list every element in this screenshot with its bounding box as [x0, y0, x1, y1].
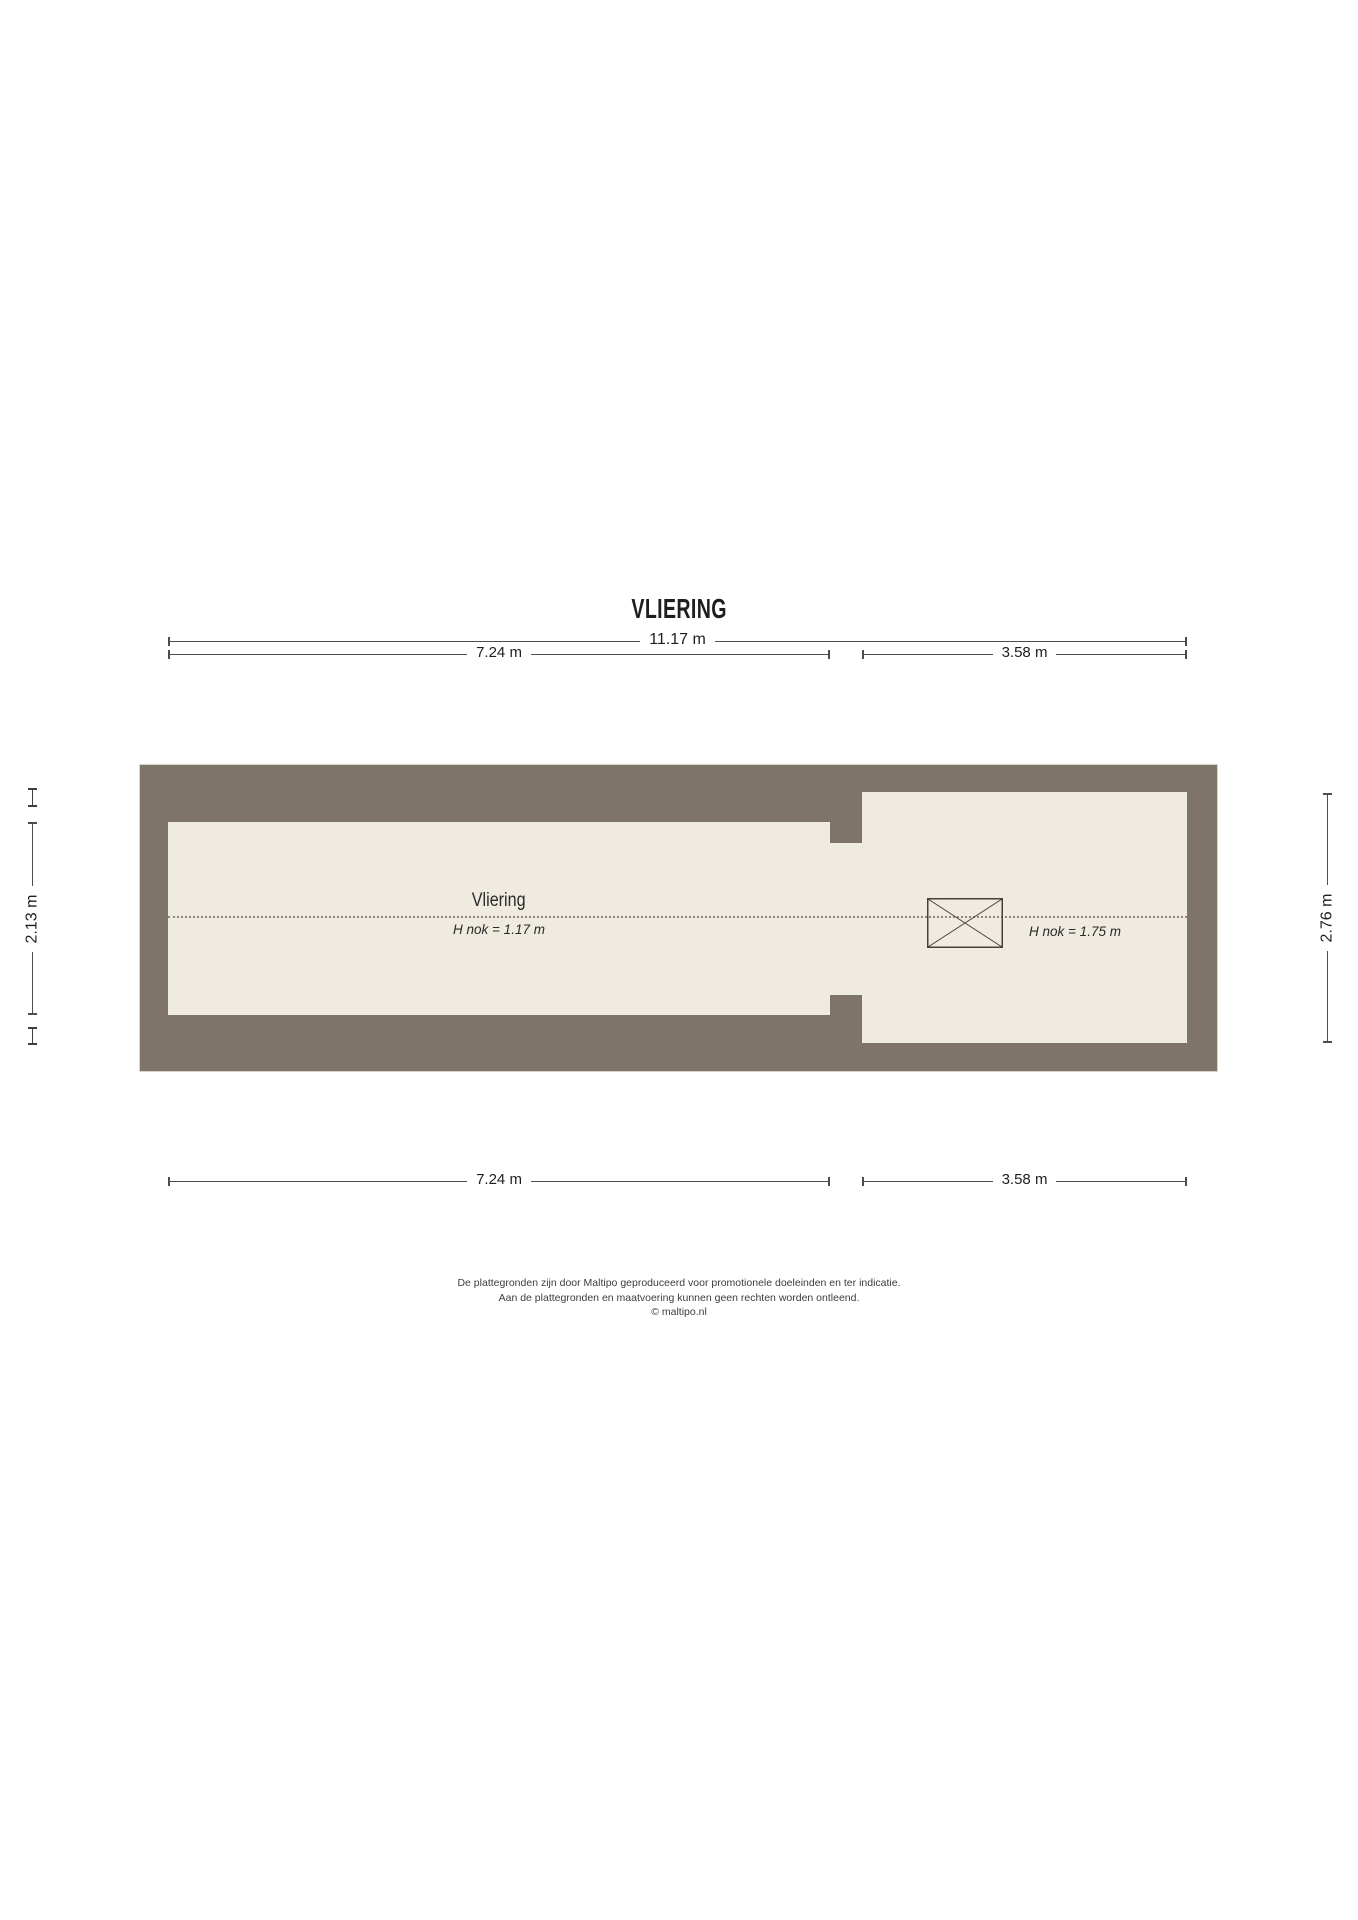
dimension-bottom-right-label: 3.58 m — [993, 1172, 1057, 1188]
dimension-line-segment — [170, 1181, 467, 1182]
wall-thickness-tick-top-left — [28, 788, 37, 807]
dimension-line-segment — [1327, 951, 1328, 1041]
floorplan-page: VLIERING 11.17 m 7.24 m 3.58 m 2.13 m 2.… — [0, 0, 1358, 1920]
dimension-line-segment — [1056, 654, 1185, 655]
dimension-line-segment — [170, 641, 640, 642]
ridge-height-label-right: H nok = 1.75 m — [995, 924, 1155, 939]
footer-disclaimer: De plattegronden zijn door Maltipo gepro… — [0, 1276, 1358, 1320]
page-title: VLIERING — [0, 594, 1358, 624]
room-label-vliering: Vliering — [168, 891, 830, 911]
dimension-bottom-right: 3.58 m — [862, 1173, 1187, 1189]
dimension-line-segment — [1327, 795, 1328, 885]
ridge-height-label-left: H nok = 1.17 m — [168, 922, 830, 937]
dimension-top-left: 7.24 m — [168, 646, 830, 662]
footer-line-2: Aan de plattegronden en maatvoering kunn… — [0, 1291, 1358, 1306]
dimension-top-right-label: 3.58 m — [993, 645, 1057, 661]
dimension-top-left-label: 7.24 m — [467, 645, 531, 661]
dimension-right-height-label: 2.76 m — [1319, 885, 1335, 951]
wall-thickness-tick-bottom-left — [28, 1027, 37, 1045]
dimension-line-segment — [531, 654, 828, 655]
dimension-line-segment — [715, 641, 1185, 642]
dimension-bottom-left: 7.24 m — [168, 1173, 830, 1189]
dimension-left-height-label: 2.13 m — [24, 886, 40, 952]
dimension-line-segment — [531, 1181, 828, 1182]
room-connector-opening — [830, 843, 862, 995]
dimension-top-right: 3.58 m — [862, 646, 1187, 662]
dimension-line-segment — [864, 1181, 993, 1182]
dimension-line-segment — [864, 654, 993, 655]
ridge-dotted-line — [168, 916, 1187, 918]
dimension-right-height: 2.76 m — [1319, 793, 1335, 1043]
dimension-line-segment — [1056, 1181, 1185, 1182]
dimension-line-segment — [170, 654, 467, 655]
dimension-left-height: 2.13 m — [24, 822, 40, 1015]
room-vliering-left — [168, 822, 830, 1015]
footer-copyright: © maltipo.nl — [0, 1305, 1358, 1320]
footer-line-1: De plattegronden zijn door Maltipo gepro… — [0, 1276, 1358, 1291]
roof-window-icon — [927, 898, 1003, 948]
page-title-text: VLIERING — [631, 594, 726, 624]
dimension-line-segment — [32, 824, 33, 886]
dimension-line-segment — [32, 952, 33, 1014]
dimension-bottom-left-label: 7.24 m — [467, 1172, 531, 1188]
